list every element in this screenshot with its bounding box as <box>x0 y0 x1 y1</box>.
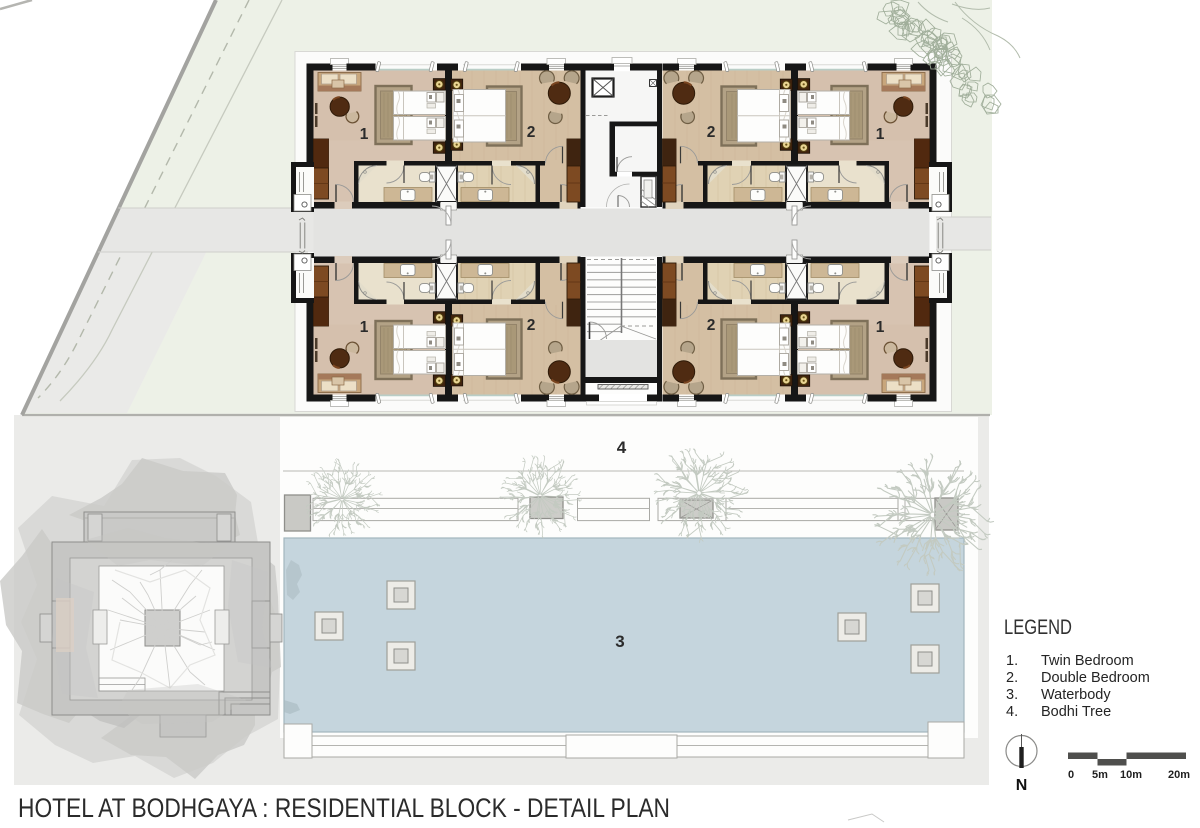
svg-text:Double Bedroom: Double Bedroom <box>1041 670 1150 686</box>
svg-text:4: 4 <box>617 438 627 457</box>
svg-text:N: N <box>1016 777 1028 794</box>
svg-text:LEGEND: LEGEND <box>1004 615 1072 639</box>
svg-text:10m: 10m <box>1120 769 1142 781</box>
svg-text:3.: 3. <box>1006 687 1018 703</box>
svg-text:Bodhi Tree: Bodhi Tree <box>1041 704 1111 720</box>
svg-text:2: 2 <box>707 124 716 141</box>
svg-text:Twin Bedroom: Twin Bedroom <box>1041 653 1134 669</box>
svg-text:1: 1 <box>360 126 369 143</box>
svg-text:4.: 4. <box>1006 704 1018 720</box>
svg-text:1: 1 <box>876 126 885 143</box>
svg-text:20m: 20m <box>1168 769 1190 781</box>
svg-text:5m: 5m <box>1092 769 1108 781</box>
svg-text:1.: 1. <box>1006 653 1018 669</box>
svg-text:HOTEL AT BODHGAYA : RESIDENTIA: HOTEL AT BODHGAYA : RESIDENTIAL BLOCK - … <box>18 793 670 823</box>
svg-text:Waterbody: Waterbody <box>1041 687 1111 703</box>
svg-text:1: 1 <box>876 319 885 336</box>
svg-text:0: 0 <box>1068 769 1074 781</box>
svg-text:2.: 2. <box>1006 670 1018 686</box>
svg-text:2: 2 <box>527 317 536 334</box>
svg-text:2: 2 <box>707 317 716 334</box>
svg-text:2: 2 <box>527 124 536 141</box>
svg-text:3: 3 <box>615 632 624 651</box>
svg-text:1: 1 <box>360 319 369 336</box>
